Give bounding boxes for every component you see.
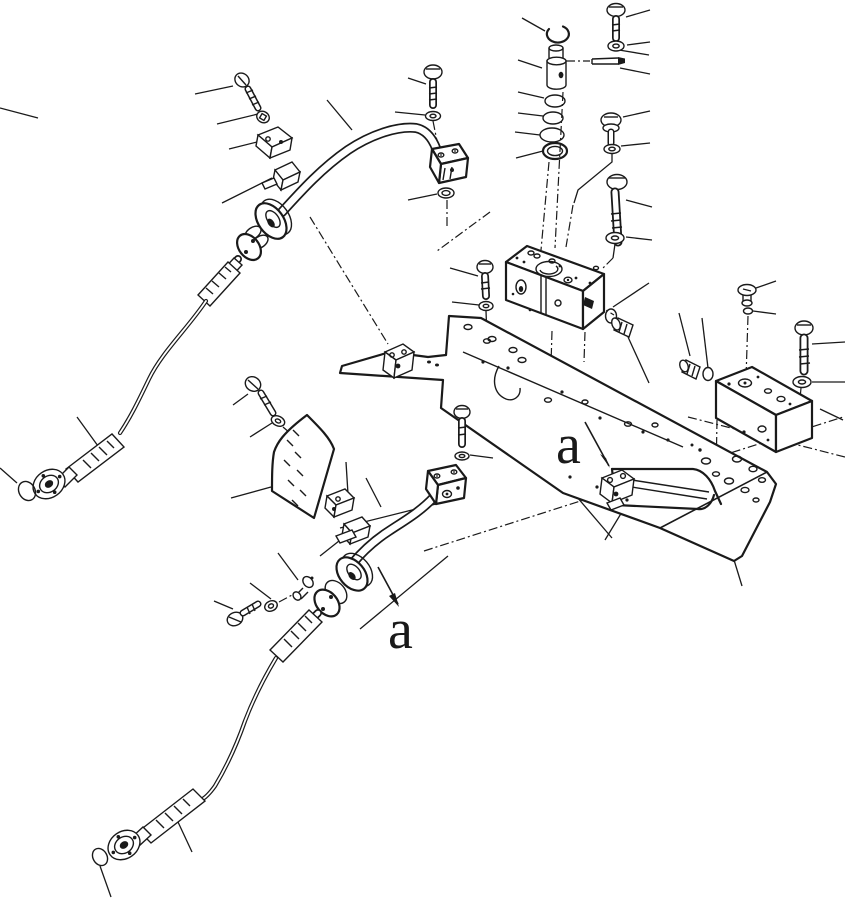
guard-plate [272, 415, 334, 518]
valve-stack [540, 27, 569, 160]
plain-washer [608, 41, 624, 51]
o-ring [543, 112, 563, 124]
countersunk-plug [738, 285, 756, 307]
hex-bolt [232, 70, 259, 108]
o-ring [545, 95, 565, 107]
o-ring [703, 368, 713, 381]
snap-ring [547, 27, 569, 43]
hose-sleeve [198, 262, 240, 306]
pipe-clamp-half-lower [262, 162, 300, 190]
view-labels: a a [378, 414, 610, 661]
lower-clamp-set [325, 489, 370, 544]
pipe-clamp-half-upper [325, 489, 354, 517]
upper-hose-assembly [15, 229, 266, 504]
valve-cartridge [547, 45, 566, 89]
valve-fasteners [592, 4, 627, 244]
elbow-bolt [424, 65, 442, 121]
pipe-clamp-half-lower [336, 517, 370, 544]
manifold-bolt-left [477, 261, 493, 311]
frame-bolt [454, 406, 470, 461]
plain-washer [606, 233, 624, 244]
hex-bolt-long [607, 175, 627, 243]
hex-plug [678, 359, 700, 379]
diagram-canvas: a a [0, 0, 845, 900]
plain-washer [479, 302, 493, 311]
manifold-port-parts [606, 309, 634, 337]
lower-hose-assembly [89, 585, 344, 869]
plain-washer [455, 452, 469, 460]
manifold-block [506, 246, 604, 329]
hose-sleeve [270, 610, 322, 662]
view-label-a1: a [556, 414, 581, 476]
plain-washer [604, 145, 620, 154]
upper-clamp-set [232, 70, 300, 190]
flanged-bolt [601, 113, 621, 143]
pipe-clamp-half-upper [256, 127, 292, 158]
elbow-plug [438, 188, 454, 198]
exploded-parts-diagram: a a [0, 0, 845, 900]
plain-washer [263, 599, 279, 614]
flanged-elbow [430, 144, 468, 183]
spring-pin [592, 57, 625, 65]
plain-washer [426, 112, 441, 121]
plate-bolt [242, 374, 286, 429]
view-label-a2: a [388, 599, 413, 661]
hex-bolt [795, 321, 813, 371]
o-ring [540, 128, 564, 142]
plain-washer [793, 377, 811, 388]
backup-ring [543, 143, 567, 159]
hex-plug [610, 317, 633, 337]
connector-fitting [291, 575, 315, 602]
small-washer [744, 308, 753, 314]
hex-bolt [607, 4, 625, 39]
flanged-elbow [426, 465, 466, 504]
